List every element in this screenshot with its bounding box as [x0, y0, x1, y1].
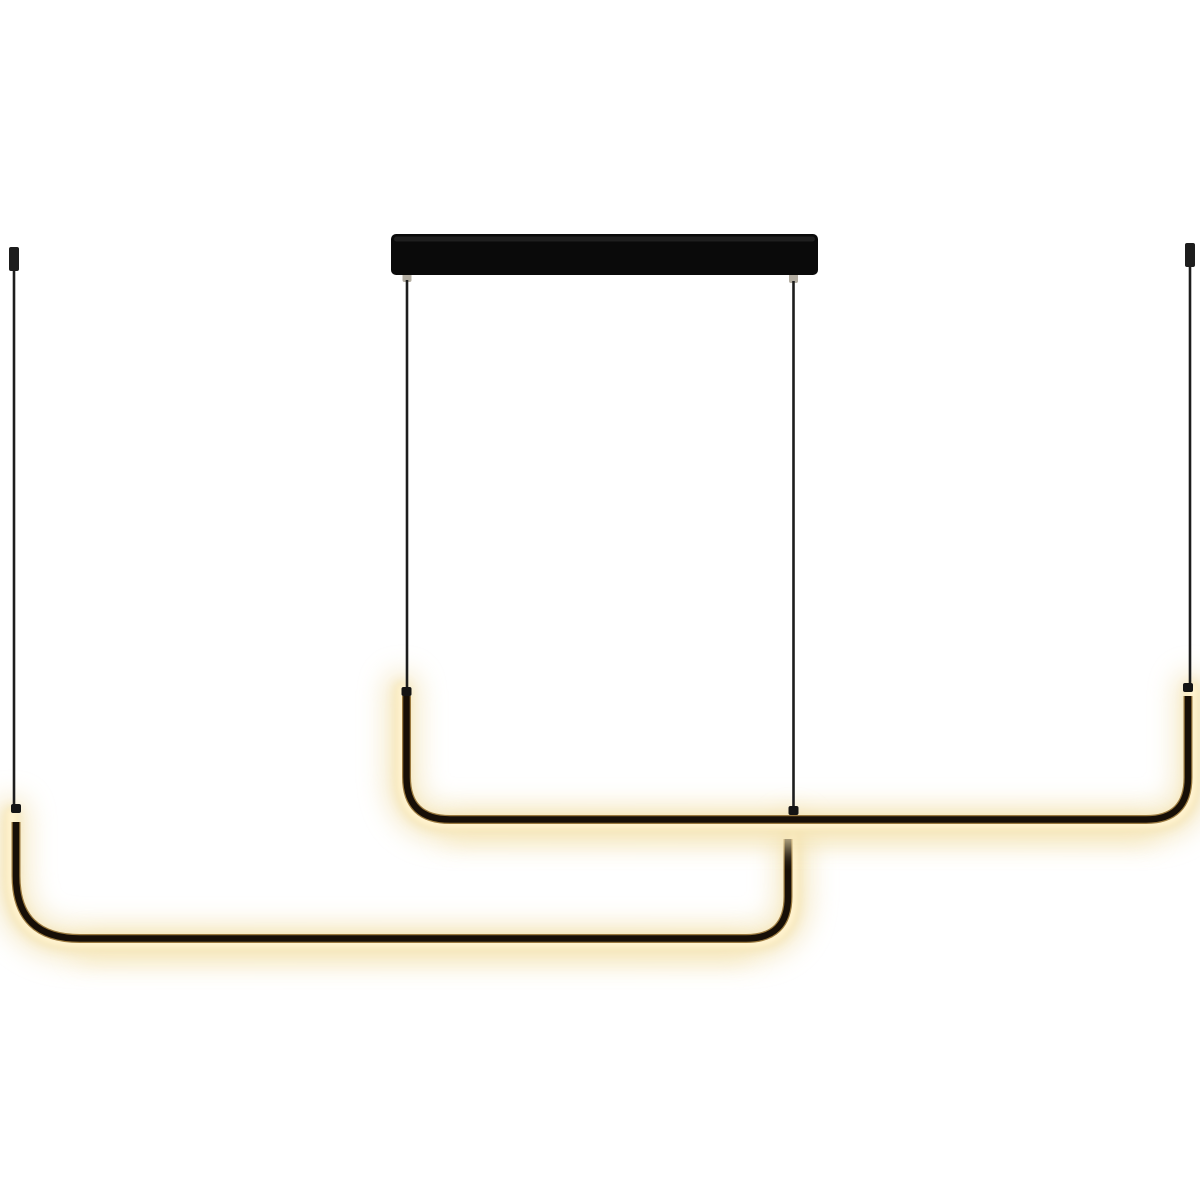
junction-node-upper-left — [402, 687, 412, 696]
pendant-lamp-photo — [0, 0, 1200, 1200]
canopy-gloss-highlight — [394, 237, 815, 242]
junction-node-upper-right — [1183, 683, 1193, 692]
ceiling-cap-left — [9, 247, 19, 271]
product-image — [0, 0, 1200, 1200]
junction-node-upper-mid — [789, 806, 799, 815]
junction-node-lower-left — [11, 804, 21, 813]
ceiling-cap-right — [1185, 243, 1195, 267]
white-background — [0, 0, 1200, 1200]
